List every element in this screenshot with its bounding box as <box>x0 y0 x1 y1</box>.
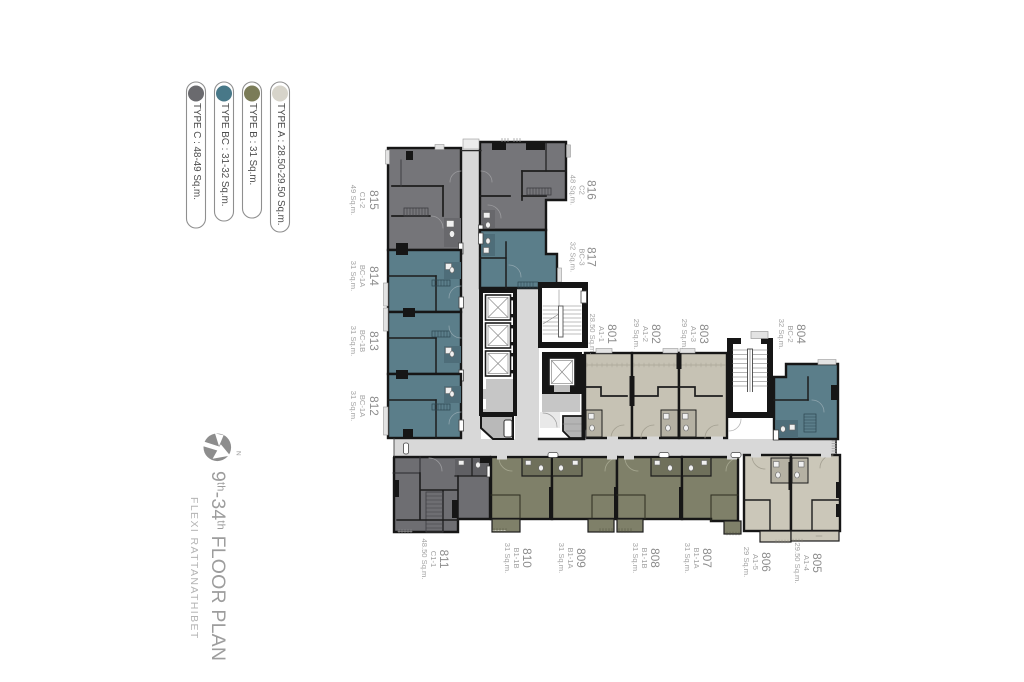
svg-text:815: 815 <box>367 190 381 210</box>
svg-text:804: 804 <box>794 324 808 344</box>
svg-text:801: 801 <box>605 324 619 344</box>
svg-text:802: 802 <box>649 324 663 344</box>
svg-text:9th-34th FLOOR PLAN: 9th-34th FLOOR PLAN <box>207 471 229 661</box>
svg-text:C1-2: C1-2 <box>358 192 367 208</box>
svg-text:806: 806 <box>759 552 773 572</box>
svg-text:31 Sq.m.: 31 Sq.m. <box>683 543 692 573</box>
svg-text:B1-1B: B1-1B <box>512 547 521 568</box>
svg-text:A1-2: A1-2 <box>641 326 650 342</box>
svg-text:31 Sq.m.: 31 Sq.m. <box>557 543 566 573</box>
svg-text:31 Sq.m.: 31 Sq.m. <box>631 543 640 573</box>
svg-text:29 Sq.m.: 29 Sq.m. <box>632 319 641 349</box>
svg-text:31 Sq.m.: 31 Sq.m. <box>503 543 512 573</box>
svg-text:B1-1A: B1-1A <box>566 547 575 569</box>
svg-text:B1-1B: B1-1B <box>640 547 649 568</box>
svg-text:48.50 Sq.m.: 48.50 Sq.m. <box>420 539 429 580</box>
svg-text:31 Sq.m.: 31 Sq.m. <box>349 391 358 421</box>
svg-text:31 Sq.m.: 31 Sq.m. <box>349 326 358 356</box>
svg-text:811: 811 <box>437 550 451 569</box>
svg-text:48 Sq.m.: 48 Sq.m. <box>569 175 578 205</box>
svg-text:C1-1: C1-1 <box>429 551 438 567</box>
svg-text:805: 805 <box>810 553 824 573</box>
svg-text:32 Sq.m.: 32 Sq.m. <box>777 319 786 349</box>
svg-text:A1-1: A1-1 <box>597 326 606 342</box>
svg-text:BC-1A: BC-1A <box>358 395 367 418</box>
svg-text:BC-1B: BC-1B <box>358 330 367 352</box>
svg-text:N: N <box>235 451 242 456</box>
svg-text:31 Sq.m.: 31 Sq.m. <box>349 261 358 291</box>
svg-text:808: 808 <box>648 548 662 568</box>
svg-text:B1-1A: B1-1A <box>692 547 701 569</box>
svg-text:TYPE C : 48-49 Sq.m.: TYPE C : 48-49 Sq.m. <box>191 103 202 200</box>
svg-text:803: 803 <box>697 324 711 344</box>
svg-text:BC-1A: BC-1A <box>358 265 367 288</box>
svg-text:812: 812 <box>367 396 381 416</box>
svg-text:814: 814 <box>367 266 381 286</box>
svg-text:810: 810 <box>520 548 534 568</box>
svg-text:32 Sq.m.: 32 Sq.m. <box>569 242 578 272</box>
svg-text:49 Sq.m.: 49 Sq.m. <box>349 185 358 215</box>
svg-text:807: 807 <box>700 548 714 568</box>
svg-text:FLEXI RATTANATHIBET: FLEXI RATTANATHIBET <box>188 497 200 640</box>
svg-text:813: 813 <box>367 331 381 351</box>
svg-text:A1-3: A1-3 <box>689 326 698 342</box>
svg-text:C2: C2 <box>578 185 587 195</box>
svg-text:A1-4: A1-4 <box>802 555 811 571</box>
svg-text:TYPE B : 31 Sq.m.: TYPE B : 31 Sq.m. <box>247 103 258 185</box>
svg-text:TYPE A : 28.50-29.50 Sq.m.: TYPE A : 28.50-29.50 Sq.m. <box>275 103 286 226</box>
svg-text:29.50 Sq.m.: 29.50 Sq.m. <box>793 543 802 584</box>
svg-text:BC-2: BC-2 <box>786 325 795 342</box>
svg-text:A1-5: A1-5 <box>751 554 760 570</box>
svg-text:TYPE BC : 31-32 Sq.m.: TYPE BC : 31-32 Sq.m. <box>219 103 230 206</box>
svg-text:809: 809 <box>574 548 588 568</box>
svg-text:29 Sq.m.: 29 Sq.m. <box>680 319 689 349</box>
svg-text:28.50 Sq.m.: 28.50 Sq.m. <box>588 314 597 355</box>
svg-text:BC-3: BC-3 <box>578 248 587 265</box>
svg-text:29 Sq.m.: 29 Sq.m. <box>742 547 751 577</box>
